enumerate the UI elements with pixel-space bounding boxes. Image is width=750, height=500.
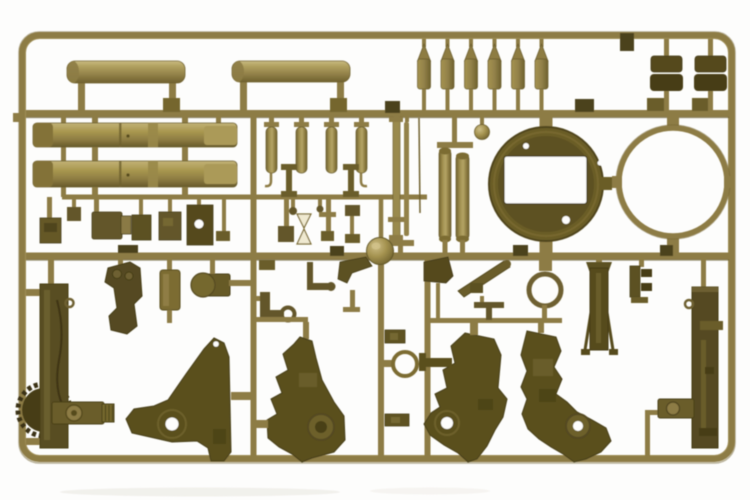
sprue-svg bbox=[0, 0, 750, 500]
mount-boss-dot bbox=[71, 410, 77, 416]
r2-tab-a bbox=[118, 245, 138, 253]
sideplate-top-edge bbox=[692, 287, 718, 292]
ibeam1-top bbox=[281, 164, 297, 170]
gusset3-tab-top bbox=[470, 320, 478, 335]
shock-hanger-pin bbox=[452, 113, 457, 144]
clampB-pin-bottom bbox=[708, 91, 713, 110]
sprue-parts-layer bbox=[13, 32, 735, 497]
pr9-foot bbox=[345, 234, 360, 243]
shell5-body bbox=[512, 59, 525, 89]
cylsm3-pin bbox=[329, 113, 334, 123]
mount-stub-a bbox=[26, 289, 40, 296]
rod-crossbar bbox=[388, 217, 405, 222]
mount-pin-top bbox=[48, 256, 54, 284]
sprue-photo: Injection-molded olive-drab plastic mode… bbox=[0, 0, 750, 500]
shell4-body bbox=[488, 59, 501, 89]
sideplate-bar bbox=[700, 321, 723, 330]
hatch-hole-c bbox=[598, 161, 603, 166]
pr2-tip bbox=[121, 216, 131, 234]
cylsm1-body bbox=[266, 127, 277, 173]
ibeam1-mid bbox=[286, 170, 292, 193]
gusset4-detail-b bbox=[533, 359, 553, 376]
gusset1-hole-top bbox=[213, 341, 219, 347]
cylsm2-cap bbox=[294, 122, 309, 127]
handrail1-body bbox=[67, 61, 185, 83]
bracket-a-bar bbox=[307, 283, 329, 290]
openring-bump-right bbox=[724, 176, 732, 188]
knobbracket-knob-b bbox=[641, 283, 652, 291]
gate-stub-left bbox=[13, 113, 22, 122]
shell6-nose bbox=[535, 44, 548, 61]
gusset3 bbox=[424, 333, 507, 462]
knobpin-a-ball bbox=[289, 207, 297, 215]
shell2-nose bbox=[441, 44, 454, 61]
drum-pin bbox=[210, 256, 215, 274]
gusset2 bbox=[267, 337, 345, 462]
barrel2-band bbox=[148, 161, 158, 187]
interbarrel-pin-a bbox=[92, 147, 98, 162]
rod-pin-b bbox=[405, 113, 409, 122]
ibeam2-bottom bbox=[343, 191, 359, 197]
shell6-tail bbox=[540, 89, 544, 111]
towbar-pin bbox=[480, 296, 484, 303]
eyering-tab bbox=[539, 256, 552, 271]
bracket-a-knob bbox=[327, 282, 336, 291]
foottrap bbox=[424, 257, 453, 283]
cylsm3-cap bbox=[324, 122, 339, 127]
shell6-body bbox=[535, 59, 548, 89]
clampA-pin-bottom bbox=[664, 91, 669, 110]
stowage-tab-dark bbox=[620, 33, 634, 51]
pr1-inner bbox=[44, 223, 57, 232]
barrel1-cap bbox=[33, 123, 53, 147]
shell5-nose bbox=[512, 44, 525, 61]
gusset2-pin bbox=[303, 322, 309, 339]
clampB-band-lower bbox=[694, 74, 727, 91]
barrel1-dimple bbox=[126, 134, 129, 137]
pr3-pin bbox=[139, 197, 143, 215]
ibeam2-mid bbox=[348, 170, 354, 193]
cylsm4-hook bbox=[361, 173, 367, 186]
shell4-tail bbox=[493, 89, 497, 111]
canister-pin-top bbox=[167, 259, 172, 271]
prA-box bbox=[67, 207, 81, 221]
rod-second bbox=[404, 122, 409, 236]
handrail1-cap bbox=[67, 61, 79, 83]
ball-small-pin bbox=[480, 113, 484, 126]
valve-bar bbox=[343, 307, 360, 312]
shock2-body bbox=[456, 154, 469, 240]
shell3-tail bbox=[469, 89, 473, 111]
ball-large bbox=[367, 238, 394, 265]
mount-stripe bbox=[44, 290, 50, 440]
knobbracket-foot bbox=[631, 297, 648, 303]
shell1-nose bbox=[418, 44, 431, 61]
shock1-stem bbox=[443, 240, 448, 256]
mortar-stripe bbox=[596, 273, 601, 343]
sideplate-pin-top bbox=[701, 256, 706, 288]
pr4-notch bbox=[163, 218, 173, 226]
shell3-nose bbox=[465, 44, 478, 61]
sideplate-boss bbox=[667, 402, 680, 415]
gusset4 bbox=[521, 331, 611, 462]
elbow-tab bbox=[259, 260, 275, 270]
clampA-pin-top bbox=[664, 39, 669, 58]
towbar-knob bbox=[503, 260, 511, 268]
shock1-cap-top bbox=[439, 148, 451, 155]
barrel2-muzzle bbox=[204, 164, 237, 184]
towbar-tee-bar bbox=[474, 302, 504, 308]
hatch-hole-a bbox=[523, 143, 529, 149]
photo-canvas: Injection-molded olive-drab plastic mode… bbox=[0, 0, 750, 500]
sideplate-detail-b bbox=[699, 428, 717, 436]
shell2-body bbox=[441, 59, 454, 89]
pr7-box bbox=[278, 226, 294, 242]
barrel2-joint bbox=[119, 161, 122, 187]
sideplate-detail-a bbox=[705, 367, 714, 374]
barrel1-muzzle bbox=[204, 126, 237, 145]
pr5-pin bbox=[197, 197, 201, 205]
towbar bbox=[458, 261, 510, 297]
pr8-bar bbox=[319, 212, 336, 217]
canister-pin-bottom bbox=[167, 310, 172, 323]
clampB-foot bbox=[692, 98, 708, 111]
r1-tab-a bbox=[385, 101, 400, 113]
pr2-body bbox=[92, 212, 122, 239]
ball-large-highlight bbox=[372, 243, 381, 250]
barrel1-band bbox=[148, 123, 158, 147]
gusset3-arm-end bbox=[419, 353, 426, 371]
handrail2-cap bbox=[232, 61, 244, 82]
photo-smudge-b bbox=[370, 488, 490, 495]
ball-small bbox=[475, 125, 490, 140]
knobbracket-knob-a bbox=[641, 269, 652, 277]
gusset1-hole bbox=[166, 418, 179, 431]
cylsm1-cap bbox=[264, 122, 279, 127]
cylsm2-pin bbox=[299, 113, 304, 123]
hatch-cutout bbox=[504, 156, 587, 204]
knobpin-a bbox=[291, 197, 295, 208]
gusset3-hole bbox=[441, 417, 453, 429]
v2-bracket-b-notch bbox=[391, 417, 400, 423]
barrel2-pin-b bbox=[182, 187, 188, 197]
towbar-tee-stem bbox=[486, 308, 492, 320]
boot-boss-a bbox=[113, 270, 122, 279]
mortar-foot-b bbox=[609, 349, 618, 355]
drum-end bbox=[191, 273, 215, 297]
sideplate-eyelet bbox=[685, 300, 693, 308]
pr6-pin bbox=[222, 197, 226, 231]
valve-body bbox=[338, 257, 372, 283]
rod-tbar-pin bbox=[398, 246, 403, 256]
knobpin-b-ball bbox=[317, 206, 324, 213]
shell1-body bbox=[418, 59, 431, 89]
boot-boss-b bbox=[125, 272, 133, 280]
shell3-body bbox=[465, 59, 478, 89]
gusset3-arm bbox=[424, 358, 452, 367]
r2-tab-c bbox=[513, 245, 528, 256]
handrail1-leg-a bbox=[78, 80, 85, 113]
rod-cap-bottom bbox=[389, 235, 403, 240]
gusset4-detail-a bbox=[539, 389, 556, 402]
pr4-pin bbox=[168, 197, 172, 212]
shell1-tail bbox=[422, 89, 426, 111]
cylsm4-cap bbox=[354, 122, 369, 127]
eyering bbox=[529, 274, 561, 306]
shell4-nose bbox=[488, 44, 501, 61]
hatch-side-tab bbox=[601, 177, 612, 190]
cylsm2-body bbox=[296, 127, 307, 173]
smallring bbox=[393, 352, 417, 376]
barrel2-cap bbox=[33, 161, 53, 187]
photo-smudge-a bbox=[60, 488, 340, 497]
clampA-band-lower bbox=[650, 74, 683, 91]
rod-pin-a bbox=[394, 113, 399, 119]
barrel2-dimple bbox=[126, 173, 129, 176]
interbarrel-pin-b bbox=[182, 147, 188, 162]
cylsm3-body bbox=[326, 127, 337, 173]
gusset2-detail bbox=[299, 373, 317, 387]
mortar-foot-a bbox=[581, 349, 590, 355]
r1-tab-b bbox=[575, 99, 594, 112]
towbar-box bbox=[470, 283, 483, 293]
ibeam1-bottom bbox=[281, 191, 297, 197]
gusset2-boss-hole bbox=[315, 421, 327, 433]
handrail2-leg-a bbox=[240, 80, 247, 113]
clampA-foot bbox=[647, 98, 664, 111]
pr9-box bbox=[345, 205, 360, 216]
clampA-band-upper bbox=[651, 56, 682, 72]
mount-stub-b bbox=[26, 438, 40, 445]
handrail2-foot bbox=[330, 98, 347, 112]
foottrap-stem bbox=[436, 283, 440, 320]
needle-rod bbox=[419, 118, 420, 213]
openring-body bbox=[619, 128, 727, 236]
spring-x-lower bbox=[297, 229, 311, 244]
gusset1-detail bbox=[213, 429, 226, 444]
shock2-stem bbox=[460, 240, 465, 256]
ibeam2-top bbox=[343, 164, 359, 170]
pr3-box bbox=[132, 215, 151, 240]
cylsm1-pin bbox=[269, 113, 274, 123]
boot-bracket bbox=[105, 262, 142, 334]
barrel2-pin-a bbox=[92, 187, 98, 197]
spring-x-upper bbox=[297, 214, 311, 228]
mount-eyelet bbox=[66, 299, 74, 307]
openring-bump-left bbox=[612, 176, 622, 188]
knobpin-b bbox=[318, 197, 322, 206]
pr5-hole bbox=[195, 220, 204, 229]
hatch-hole-b bbox=[562, 216, 570, 224]
shock1-body bbox=[439, 149, 451, 240]
pr6-foot bbox=[216, 231, 230, 241]
handrail1-foot bbox=[163, 98, 180, 112]
gusset1-tab bbox=[231, 392, 253, 400]
pr7-pin bbox=[284, 197, 289, 226]
runner-vertical-4 bbox=[648, 413, 663, 457]
sideplate-stripe bbox=[701, 340, 706, 432]
shock2-cap-top bbox=[456, 153, 469, 160]
shell5-tail bbox=[516, 89, 520, 111]
pr8-foot bbox=[321, 231, 334, 241]
drum-bracket bbox=[229, 280, 253, 286]
canister-highlight bbox=[163, 274, 169, 306]
prA-pin bbox=[72, 197, 76, 207]
v2-bracket-a-notch bbox=[390, 333, 398, 340]
rod-long bbox=[393, 119, 400, 241]
clampB-band-upper bbox=[695, 56, 726, 72]
elbow-pin bbox=[253, 296, 261, 301]
clampB-pin-top bbox=[708, 39, 713, 58]
knobbracket-pin bbox=[639, 256, 644, 267]
cylsm1-hook bbox=[265, 173, 271, 186]
pr2-pin bbox=[94, 197, 99, 212]
cylsm4-pin bbox=[359, 113, 364, 123]
pr1-pin bbox=[47, 197, 52, 218]
gusset4-pin bbox=[538, 320, 544, 333]
r2-tab-b bbox=[330, 246, 344, 256]
barrel1-joint bbox=[119, 123, 122, 147]
eyering-pin bbox=[542, 305, 547, 320]
shell2-tail bbox=[446, 89, 450, 111]
gusset3-detail bbox=[478, 399, 493, 410]
gusset2-subrunner bbox=[253, 317, 308, 322]
knobbracket-body bbox=[630, 266, 640, 297]
gusset4-boss-hole bbox=[573, 421, 583, 431]
r2-tab-d bbox=[660, 245, 673, 256]
handrail2-body bbox=[232, 61, 350, 82]
gusset2-tab bbox=[253, 420, 268, 428]
pr9-stem bbox=[350, 216, 354, 234]
